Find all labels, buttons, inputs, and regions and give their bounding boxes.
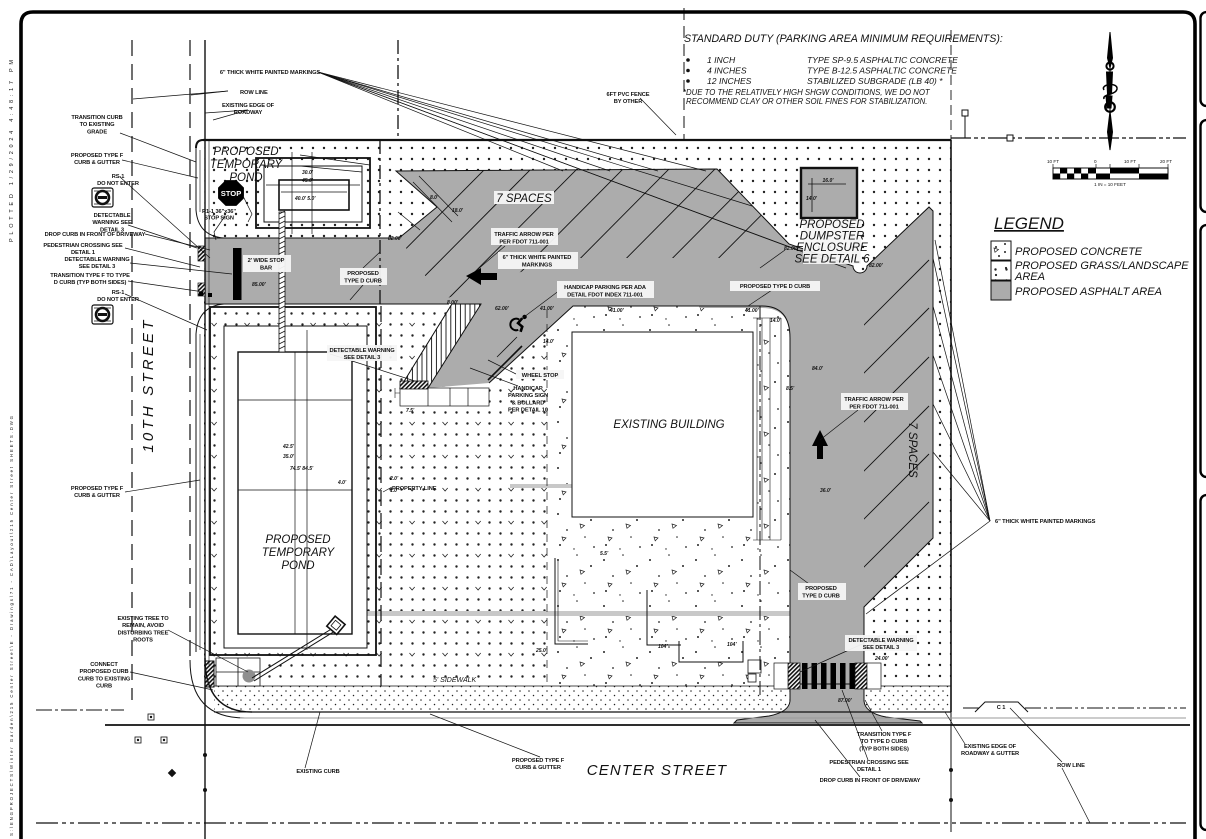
svg-text:82.00': 82.00' bbox=[869, 263, 884, 269]
svg-text:HANDICAP: HANDICAP bbox=[513, 386, 543, 392]
svg-text:1.0': 1.0' bbox=[390, 488, 399, 494]
svg-text:D CURB (TYP BOTH SIDES): D CURB (TYP BOTH SIDES) bbox=[54, 280, 127, 286]
svg-text:PROPERTY LINE: PROPERTY LINE bbox=[392, 486, 437, 492]
svg-text:85.00': 85.00' bbox=[252, 282, 267, 288]
svg-text:ROW LINE: ROW LINE bbox=[1057, 763, 1085, 769]
svg-text:SEE DETAIL 3: SEE DETAIL 3 bbox=[344, 355, 381, 361]
svg-text:EXISTING BUILDING: EXISTING BUILDING bbox=[613, 419, 724, 431]
svg-text:PROPOSED CURB: PROPOSED CURB bbox=[80, 669, 129, 675]
svg-text:RS-1: RS-1 bbox=[112, 174, 125, 180]
svg-text:(TYP BOTH SIDES): (TYP BOTH SIDES) bbox=[859, 746, 909, 752]
svg-text:BAR: BAR bbox=[260, 266, 272, 272]
svg-text:25.0': 25.0' bbox=[535, 648, 548, 654]
svg-text:STABILIZED SUBGRADE (LB 40) *: STABILIZED SUBGRADE (LB 40) * bbox=[807, 76, 943, 86]
svg-text:74.5' 84.5': 74.5' 84.5' bbox=[290, 466, 314, 472]
svg-text:5' SIDEWALK: 5' SIDEWALK bbox=[433, 677, 477, 684]
svg-text:DROP CURB IN FRONT OF DRIVEWAY: DROP CURB IN FRONT OF DRIVEWAY bbox=[45, 232, 146, 238]
svg-text:6" THICK WHITE PAINTED MARKING: 6" THICK WHITE PAINTED MARKINGS bbox=[995, 519, 1096, 525]
svg-text:PEDESTRIAN CROSSING SEE: PEDESTRIAN CROSSING SEE bbox=[43, 243, 123, 249]
svg-text:TO EXISTING: TO EXISTING bbox=[80, 122, 115, 128]
svg-text:PER DETAIL 10: PER DETAIL 10 bbox=[508, 408, 548, 414]
svg-text:2' WIDE STOP: 2' WIDE STOP bbox=[248, 258, 285, 264]
svg-text:TYPE SP-9.5 ASPHALTIC CONCRETE: TYPE SP-9.5 ASPHALTIC CONCRETE bbox=[807, 55, 958, 65]
svg-text:EXISTING EDGE OF: EXISTING EDGE OF bbox=[222, 103, 275, 109]
svg-text:6FT PVC FENCE: 6FT PVC FENCE bbox=[607, 92, 650, 98]
svg-text:STOP: STOP bbox=[221, 189, 242, 198]
svg-text:ROW LINE: ROW LINE bbox=[240, 90, 268, 96]
svg-text:40.0' 5.0': 40.0' 5.0' bbox=[294, 196, 316, 202]
svg-text:PROPOSED TYPE D CURB: PROPOSED TYPE D CURB bbox=[740, 284, 810, 290]
svg-text:41.00': 41.00' bbox=[609, 308, 625, 314]
svg-text:104': 104' bbox=[727, 642, 737, 648]
svg-text:2.0': 2.0' bbox=[389, 476, 399, 482]
svg-text:EXISTING CURB: EXISTING CURB bbox=[296, 769, 339, 775]
svg-text:41.00': 41.00' bbox=[539, 306, 555, 312]
svg-text:30.0': 30.0' bbox=[302, 170, 314, 176]
svg-text:MARKINGS: MARKINGS bbox=[522, 263, 552, 269]
svg-text:TEMPORARY: TEMPORARY bbox=[262, 547, 336, 559]
svg-text:TRAFFIC ARROW PER: TRAFFIC ARROW PER bbox=[844, 397, 903, 403]
svg-text:35.0': 35.0' bbox=[283, 454, 295, 460]
svg-text:CURB & GUTTER: CURB & GUTTER bbox=[74, 493, 120, 499]
svg-text:10TH STREET: 10TH STREET bbox=[140, 317, 157, 452]
svg-text:DETECTABLE WARNING: DETECTABLE WARNING bbox=[64, 257, 130, 263]
svg-text:DO NOT ENTER: DO NOT ENTER bbox=[97, 297, 139, 303]
svg-text:TO TYPE D CURB: TO TYPE D CURB bbox=[861, 739, 908, 745]
svg-text:TRAFFIC ARROW PER: TRAFFIC ARROW PER bbox=[494, 232, 553, 238]
svg-text:6" THICK WHITE PAINTED MARKING: 6" THICK WHITE PAINTED MARKINGS bbox=[220, 70, 321, 76]
svg-text:42.5': 42.5' bbox=[282, 444, 295, 450]
svg-text:DROP CURB IN FRONT OF DRIVEWAY: DROP CURB IN FRONT OF DRIVEWAY bbox=[820, 778, 921, 784]
svg-text:*DUE TO THE RELATIVELY HIGH SH: *DUE TO THE RELATIVELY HIGH SHGW CONDITI… bbox=[683, 88, 931, 97]
svg-text:PROPOSED TYPE F: PROPOSED TYPE F bbox=[71, 153, 124, 159]
svg-text:12 INCHES: 12 INCHES bbox=[707, 76, 752, 86]
svg-text:8.00': 8.00' bbox=[447, 300, 459, 306]
svg-text:TRANSITION CURB: TRANSITION CURB bbox=[71, 115, 122, 121]
svg-text:41.00': 41.00' bbox=[744, 308, 760, 314]
svg-text:CURB & GUTTER: CURB & GUTTER bbox=[74, 160, 120, 166]
svg-text:EXISTING TREE TO: EXISTING TREE TO bbox=[117, 616, 169, 622]
svg-text:1 IN = 10 FEET: 1 IN = 10 FEET bbox=[1094, 182, 1126, 187]
svg-text:5.5': 5.5' bbox=[600, 551, 609, 557]
svg-text:C 1: C 1 bbox=[997, 705, 1006, 711]
svg-text:CENTER STREET: CENTER STREET bbox=[587, 762, 728, 779]
svg-text:SEE DETAIL 3: SEE DETAIL 3 bbox=[863, 645, 900, 651]
svg-text:7 SPACES: 7 SPACES bbox=[906, 422, 918, 478]
svg-text:10 FT: 10 FT bbox=[1124, 159, 1136, 164]
svg-text:ROADWAY: ROADWAY bbox=[234, 110, 263, 116]
svg-text:TYPE B-12.5 ASPHALTIC CONCRETE: TYPE B-12.5 ASPHALTIC CONCRETE bbox=[807, 66, 957, 76]
svg-text:R1-1 36"x36": R1-1 36"x36" bbox=[202, 209, 236, 215]
svg-text:DUMPSTER: DUMPSTER bbox=[800, 231, 865, 243]
svg-text:10 FT: 10 FT bbox=[1047, 159, 1059, 164]
svg-text:CONNECT: CONNECT bbox=[90, 662, 118, 668]
svg-text:POND: POND bbox=[281, 560, 314, 572]
svg-text:CURB TO EXISTING: CURB TO EXISTING bbox=[78, 676, 131, 682]
svg-text:PROPOSED: PROPOSED bbox=[799, 219, 864, 231]
svg-text:HANDICAP PARKING PER ADA: HANDICAP PARKING PER ADA bbox=[564, 285, 646, 291]
svg-text:4 INCHES: 4 INCHES bbox=[707, 66, 747, 76]
svg-text:PROPOSED: PROPOSED bbox=[347, 271, 378, 277]
svg-text:62.00': 62.00' bbox=[495, 306, 510, 312]
svg-text:PROPOSED ASPHALT AREA: PROPOSED ASPHALT AREA bbox=[1015, 286, 1162, 298]
svg-text:BY OTHER: BY OTHER bbox=[614, 99, 642, 105]
svg-text:TRANSITION TYPE F: TRANSITION TYPE F bbox=[857, 732, 912, 738]
svg-text:ROADWAY & GUTTER: ROADWAY & GUTTER bbox=[961, 751, 1019, 757]
svg-text:CURB & GUTTER: CURB & GUTTER bbox=[515, 765, 561, 771]
svg-text:& BOLLARD: & BOLLARD bbox=[512, 400, 545, 406]
svg-text:STOP SIGN: STOP SIGN bbox=[204, 216, 234, 222]
svg-text:8.5': 8.5' bbox=[786, 386, 795, 392]
svg-text:TYPE D CURB: TYPE D CURB bbox=[344, 279, 381, 285]
svg-text:TEMPORARY: TEMPORARY bbox=[210, 159, 284, 171]
svg-text:PEDESTRIAN CROSSING SEE: PEDESTRIAN CROSSING SEE bbox=[829, 760, 909, 766]
svg-text:POND: POND bbox=[229, 172, 262, 184]
svg-text:14.0': 14.0' bbox=[806, 196, 818, 202]
svg-text:SEE DETAIL 3: SEE DETAIL 3 bbox=[79, 264, 116, 270]
svg-text:PROPOSED TYPE F: PROPOSED TYPE F bbox=[512, 758, 565, 764]
svg-text:PROPOSED: PROPOSED bbox=[805, 586, 836, 592]
svg-text:RECOMMEND CLAY OR OTHER SOIL F: RECOMMEND CLAY OR OTHER SOIL FINES FOR S… bbox=[686, 97, 927, 106]
svg-text:GRADE: GRADE bbox=[87, 129, 107, 135]
svg-text:24.00': 24.00' bbox=[874, 656, 890, 662]
svg-text:PROPOSED: PROPOSED bbox=[265, 534, 330, 546]
svg-text:7.5': 7.5' bbox=[406, 408, 415, 414]
svg-text:PARKING SIGN: PARKING SIGN bbox=[508, 393, 548, 399]
svg-text:PER FDOT 711-001: PER FDOT 711-001 bbox=[849, 405, 898, 411]
svg-text:82.00': 82.00' bbox=[388, 236, 403, 242]
svg-text:RS-1: RS-1 bbox=[112, 290, 125, 296]
svg-text:18.0': 18.0' bbox=[452, 208, 464, 214]
svg-text:1 INCH: 1 INCH bbox=[707, 55, 736, 65]
svg-text:CURB: CURB bbox=[96, 684, 112, 690]
svg-text:14.0': 14.0' bbox=[770, 318, 782, 324]
svg-text:0: 0 bbox=[1094, 159, 1097, 164]
svg-text:PER FDOT 711-001: PER FDOT 711-001 bbox=[499, 240, 548, 246]
svg-text:AREA: AREA bbox=[1014, 271, 1045, 283]
svg-text:STANDARD DUTY (PARKING AREA MI: STANDARD DUTY (PARKING AREA MINIMUM REQU… bbox=[684, 33, 1003, 45]
svg-text:4.0': 4.0' bbox=[337, 480, 347, 486]
svg-text:SEE DETAIL 6: SEE DETAIL 6 bbox=[795, 254, 871, 266]
svg-text:20 FT: 20 FT bbox=[1160, 159, 1172, 164]
svg-text:PROPOSED TYPE F: PROPOSED TYPE F bbox=[71, 486, 124, 492]
svg-text:WARNING SEE: WARNING SEE bbox=[92, 220, 132, 226]
svg-text:84.0': 84.0' bbox=[812, 366, 824, 372]
svg-text:PROPOSED: PROPOSED bbox=[213, 146, 278, 158]
svg-text:PROPOSED CONCRETE: PROPOSED CONCRETE bbox=[1015, 246, 1143, 258]
svg-text:87.00': 87.00' bbox=[838, 698, 853, 704]
svg-text:DISTURBING TREE: DISTURBING TREE bbox=[118, 630, 169, 636]
svg-text:6" THICK WHITE PAINTED: 6" THICK WHITE PAINTED bbox=[503, 255, 572, 261]
svg-text:LEGEND: LEGEND bbox=[994, 214, 1064, 233]
svg-text:DETECTABLE WARNING: DETECTABLE WARNING bbox=[329, 348, 395, 354]
svg-text:DETAIL 1: DETAIL 1 bbox=[857, 767, 881, 773]
svg-text:ENCLOSURE: ENCLOSURE bbox=[796, 242, 868, 254]
svg-text:8.0': 8.0' bbox=[430, 195, 439, 201]
svg-text:16.0': 16.0' bbox=[823, 178, 835, 184]
svg-text:WHEEL STOP: WHEEL STOP bbox=[522, 373, 559, 379]
svg-text:14.0': 14.0' bbox=[543, 339, 555, 345]
svg-text:TYPE D CURB: TYPE D CURB bbox=[802, 594, 839, 600]
svg-text:45.0': 45.0' bbox=[301, 178, 314, 184]
svg-text:DETAIL 1: DETAIL 1 bbox=[71, 250, 95, 256]
svg-text:ROOTS: ROOTS bbox=[133, 638, 153, 644]
svg-text:36.0': 36.0' bbox=[820, 488, 832, 494]
svg-text:82.00': 82.00' bbox=[784, 246, 799, 252]
svg-text:104': 104' bbox=[658, 644, 668, 650]
svg-text:EXISTING EDGE OF: EXISTING EDGE OF bbox=[964, 744, 1017, 750]
svg-text:DETECTABLE: DETECTABLE bbox=[94, 213, 131, 219]
svg-text:DO NOT ENTER: DO NOT ENTER bbox=[97, 181, 139, 187]
svg-text:7 SPACES: 7 SPACES bbox=[496, 193, 552, 205]
svg-text:DETAIL FDOT INDEX 711-001: DETAIL FDOT INDEX 711-001 bbox=[567, 293, 643, 299]
svg-text:REMAIN, AVOID: REMAIN, AVOID bbox=[122, 623, 164, 629]
svg-text:DETECTABLE WARNING: DETECTABLE WARNING bbox=[848, 638, 914, 644]
svg-text:TRANSITION TYPE F TO TYPE: TRANSITION TYPE F TO TYPE bbox=[50, 273, 130, 279]
